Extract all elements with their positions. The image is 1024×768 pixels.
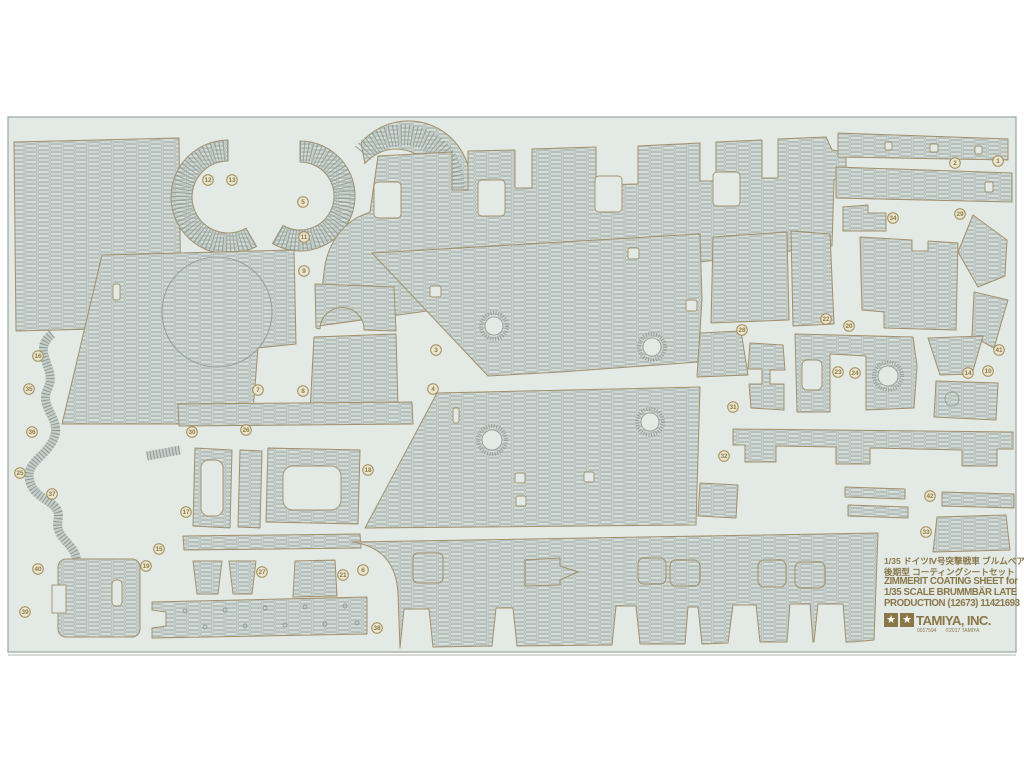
part-number-label: 22: [821, 314, 832, 325]
svg-text:8: 8: [301, 388, 305, 395]
svg-text:2: 2: [953, 160, 957, 167]
part-number-label: 1: [993, 156, 1004, 167]
part-number-label: 24: [850, 368, 861, 379]
sheet-piece: [697, 331, 748, 377]
sheet-piece: [238, 450, 262, 528]
svg-text:15: 15: [155, 546, 163, 553]
part-number-label: 17: [181, 507, 192, 518]
svg-text:3: 3: [434, 347, 438, 354]
svg-text:32: 32: [720, 453, 728, 460]
svg-text:30: 30: [188, 429, 196, 436]
product-title-en-line3: PRODUCTION (12673) 11421693: [884, 599, 1014, 610]
svg-text:35: 35: [25, 386, 33, 393]
part-number-label: 41: [994, 345, 1005, 356]
svg-text:9: 9: [302, 268, 306, 275]
svg-text:42: 42: [926, 493, 934, 500]
svg-text:37: 37: [48, 491, 56, 498]
product-title-jp-line1: 1/35 ドイツⅣ号突撃戦車 ブルムベア: [884, 556, 1014, 567]
print-code: 0017594: [917, 628, 936, 634]
part-number-label: 30: [187, 427, 198, 438]
part-number-label: 14: [963, 368, 974, 379]
product-photo-page: 1234567891011121314151617181920212223242…: [0, 0, 1024, 768]
svg-text:38: 38: [373, 625, 381, 632]
part-number-label: 6: [358, 565, 369, 576]
svg-text:39: 39: [21, 609, 29, 616]
svg-text:22: 22: [822, 316, 830, 323]
zimmerit-sheet-graphic: 1234567891011121314151617181920212223242…: [0, 0, 1024, 768]
part-number-label: 18: [363, 465, 374, 476]
sheet-piece: [293, 560, 337, 597]
svg-text:36: 36: [28, 429, 36, 436]
part-number-label: 4: [428, 384, 439, 395]
part-number-label: 33: [921, 527, 932, 538]
svg-text:34: 34: [889, 215, 897, 222]
svg-text:19: 19: [142, 563, 150, 570]
part-number-label: 27: [257, 567, 268, 578]
sheet-piece: [229, 561, 256, 594]
svg-text:23: 23: [834, 369, 842, 376]
svg-text:4: 4: [431, 386, 435, 393]
part-number-label: 26: [241, 425, 252, 436]
part-number-label: 19: [141, 561, 152, 572]
part-number-label: 31: [728, 402, 739, 413]
svg-text:7: 7: [256, 387, 260, 394]
part-number-label: 16: [33, 351, 44, 362]
part-number-label: 20: [844, 321, 855, 332]
svg-text:12: 12: [204, 177, 212, 184]
part-number-label: 15: [154, 544, 165, 555]
part-number-label: 40: [33, 564, 44, 575]
sheet-piece: [58, 559, 140, 637]
brand-name: TAMIYA, INC.: [916, 613, 991, 628]
svg-text:6: 6: [361, 567, 365, 574]
part-number-label: 7: [253, 385, 264, 396]
sheet-piece: [698, 483, 738, 518]
svg-text:24: 24: [851, 370, 859, 377]
svg-text:27: 27: [258, 569, 266, 576]
svg-text:21: 21: [339, 572, 347, 579]
svg-text:28: 28: [738, 327, 746, 334]
sheet-piece: [942, 492, 1014, 508]
part-number-label: 25: [15, 468, 26, 479]
sheet-piece: [791, 231, 834, 326]
part-number-label: 12: [203, 175, 214, 186]
part-number-label: 32: [719, 451, 730, 462]
part-number-label: 37: [47, 489, 58, 500]
svg-text:1: 1: [996, 158, 1000, 165]
part-number-label: 39: [20, 607, 31, 618]
copyright-notice: ©2017 TAMIYA: [945, 628, 979, 634]
svg-text:20: 20: [845, 323, 853, 330]
tamiya-star-icon: ★: [884, 613, 898, 627]
svg-text:29: 29: [956, 211, 964, 218]
part-number-label: 9: [299, 266, 310, 277]
sheet-piece: [933, 515, 1010, 552]
svg-text:40: 40: [34, 566, 42, 573]
svg-text:31: 31: [729, 404, 737, 411]
svg-text:13: 13: [228, 177, 236, 184]
part-number-label: 42: [925, 491, 936, 502]
sheet-piece: [152, 597, 367, 638]
svg-text:18: 18: [364, 467, 372, 474]
sheet-piece: [711, 232, 789, 323]
part-number-label: 8: [298, 386, 309, 397]
tamiya-star-icon: ★: [900, 613, 914, 627]
svg-text:33: 33: [922, 529, 930, 536]
product-info-block: 1/35 ドイツⅣ号突撃戦車 ブルムベア 後期型 コーティングシートセット ZI…: [884, 556, 1014, 634]
svg-text:14: 14: [964, 370, 972, 377]
part-number-label: 36: [27, 427, 38, 438]
part-number-label: 29: [955, 209, 966, 220]
part-number-label: 10: [983, 366, 994, 377]
sheet-piece: [848, 505, 908, 518]
part-number-label: 11: [299, 232, 310, 243]
svg-text:5: 5: [301, 199, 305, 206]
part-number-label: 13: [227, 175, 238, 186]
part-number-label: 21: [338, 570, 349, 581]
sheet-piece: [934, 381, 998, 420]
part-number-label: 2: [950, 158, 961, 169]
part-number-label: 3: [431, 345, 442, 356]
svg-text:41: 41: [995, 347, 1003, 354]
sheet-piece: [310, 334, 398, 411]
part-number-label: 34: [888, 213, 899, 224]
svg-text:17: 17: [182, 509, 190, 516]
svg-text:25: 25: [16, 470, 24, 477]
svg-text:26: 26: [242, 427, 250, 434]
svg-text:11: 11: [301, 234, 308, 241]
sheet-piece: [178, 402, 413, 426]
svg-text:10: 10: [984, 368, 992, 375]
part-number-label: 5: [298, 197, 309, 208]
part-number-label: 35: [24, 384, 35, 395]
sheet-piece: [193, 561, 222, 594]
part-number-label: 38: [372, 623, 383, 634]
sheet-piece: [845, 487, 905, 499]
part-number-label: 28: [737, 325, 748, 336]
sheet-piece: [183, 534, 361, 550]
part-number-label: 23: [833, 367, 844, 378]
svg-text:16: 16: [34, 353, 42, 360]
